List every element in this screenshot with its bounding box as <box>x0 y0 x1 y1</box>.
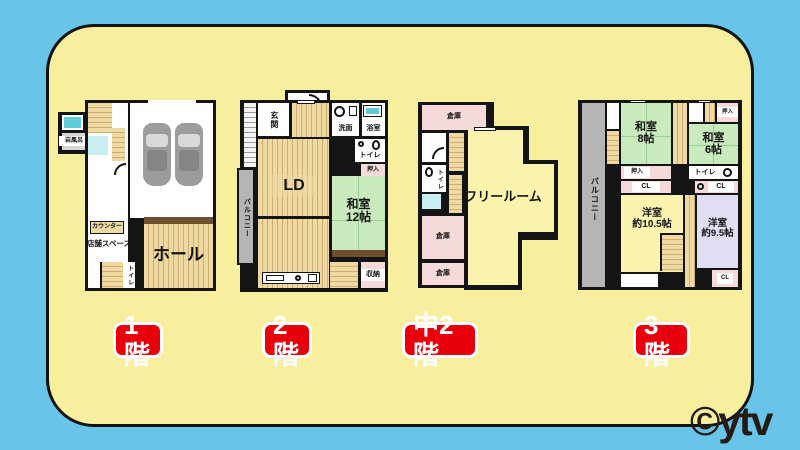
toilet-room: トイレ <box>422 165 446 192</box>
toilet-icon <box>425 167 433 177</box>
stairs <box>449 133 464 171</box>
room-label-cl-right: CL <box>708 182 734 192</box>
room-label-shop-space: 店舗スペース <box>86 239 132 249</box>
room-label-toilet: トイレ <box>124 262 135 288</box>
shop-area: カウンター 店舗スペース トイレ <box>88 103 128 288</box>
car-icon <box>143 123 171 186</box>
cl-bottom: CL <box>712 270 738 287</box>
kitchen-sink-icon <box>266 275 284 281</box>
toilet-icon <box>723 168 732 177</box>
door-arc <box>114 163 126 175</box>
stairs <box>660 233 683 271</box>
room-label-western-room-105: 洋室 約10.5帖 <box>622 203 682 235</box>
closet-top: 押入 <box>717 103 738 122</box>
closet-mid: 押入 <box>621 166 671 179</box>
entrance-room: 玄関 <box>258 103 289 136</box>
landing <box>607 103 619 129</box>
japanese-room-12: 和室 12帖 <box>332 176 385 257</box>
room-label-living-dining: LD <box>272 175 316 197</box>
room-label-closet-top: 押入 <box>717 107 738 117</box>
cl-right: CL <box>695 181 738 193</box>
room-label-japanese-room-6: 和室 6帖 <box>694 128 733 160</box>
washer-icon <box>349 106 357 116</box>
floorplan-1f: 岩風呂 カウンター <box>56 100 216 292</box>
room-label-toilet: トイレ <box>355 150 385 161</box>
bathroom: 浴室 <box>362 103 385 136</box>
window <box>474 127 496 131</box>
ytv-watermark: ©ytv <box>690 398 771 445</box>
hall-edge <box>144 217 213 224</box>
room-label-japanese-room-8: 和室 8帖 <box>626 116 666 150</box>
sink-icon <box>334 106 345 117</box>
balcony: バルコニー <box>237 168 255 265</box>
floor-badge-m2f: 中2階 <box>402 322 478 358</box>
nook-floor <box>705 103 715 122</box>
garage-door <box>148 100 196 103</box>
washroom: 洗面 <box>332 103 359 136</box>
room-label-closet: 押入 <box>361 164 385 176</box>
corridor-floor <box>685 195 695 287</box>
stairs <box>88 103 112 133</box>
room-label-closet-mid: 押入 <box>624 167 650 178</box>
door-arc <box>432 147 444 159</box>
living-dining: LD <box>258 139 329 216</box>
sink-icon <box>697 183 704 190</box>
window <box>630 100 646 103</box>
corridor <box>422 133 446 162</box>
car-windshield <box>178 134 200 147</box>
car-roof <box>179 150 199 171</box>
floor-badge-2f: 2階 <box>262 322 312 358</box>
stairs <box>330 262 358 288</box>
kitchen-counter <box>262 272 320 284</box>
bathtub-icon <box>62 115 83 130</box>
room-label-balcony: バルコニー <box>240 178 253 258</box>
car-roof <box>147 150 167 171</box>
free-room-c <box>468 228 518 285</box>
window <box>698 100 711 103</box>
floor1-outline: カウンター 店舗スペース トイレ ホール <box>85 100 216 291</box>
kitchen-dining <box>258 219 329 288</box>
tv-graphic-floorplans: 岩風呂 カウンター <box>0 0 800 450</box>
hall-room: ホール <box>144 224 213 288</box>
japanese-room-6: 和室 6帖 <box>689 124 738 164</box>
storage-mid: 倉庫 <box>422 216 464 259</box>
cl-left: CL <box>621 181 671 193</box>
sink-icon <box>358 141 364 147</box>
room-label-storage-bottom: 倉庫 <box>422 267 464 281</box>
room-label-washroom: 洗面 <box>332 123 359 134</box>
stove-icon <box>295 275 301 281</box>
car-icon <box>175 123 203 186</box>
free-room-a <box>468 130 523 232</box>
floorplan-3f: バルコニー 和室 8帖 押入 和室 6帖 押入 トイレ CL CL <box>578 100 742 290</box>
toilet-room: トイレ <box>355 139 385 162</box>
room-label-cl-bottom: CL <box>717 273 733 284</box>
car-windshield <box>146 134 168 147</box>
tatami-edge <box>332 250 385 257</box>
bathtub-icon <box>364 106 381 116</box>
corridor-floor <box>673 103 687 164</box>
nook <box>689 103 703 122</box>
garage <box>130 103 213 218</box>
room-label-storage: 収納 <box>361 269 385 281</box>
floorplan-m2f: 倉庫 トイレ 倉庫 倉庫 フリールーム <box>416 96 562 294</box>
upper-hall <box>292 103 329 137</box>
balcony: バルコニー <box>582 103 605 287</box>
floor-badge-1f: 1階 <box>113 322 163 358</box>
toilet-icon <box>372 140 380 150</box>
western-room-95: 洋室 約9.5帖 <box>697 195 738 268</box>
stairs <box>607 131 619 164</box>
stairs <box>100 262 123 288</box>
room-label-toilet: トイレ <box>434 167 444 191</box>
japanese-room-8: 和室 8帖 <box>621 103 671 164</box>
window <box>297 100 315 104</box>
room-label-entrance: 玄関 <box>267 105 280 134</box>
stairs <box>112 128 125 161</box>
closet: 押入 <box>361 164 385 176</box>
storage-bottom: 倉庫 <box>422 263 464 285</box>
storage-room: 収納 <box>361 262 385 288</box>
toilet-room: トイレ <box>689 166 738 179</box>
stove-grid-icon <box>308 274 317 282</box>
room-label-storage-top: 倉庫 <box>422 110 486 124</box>
stairs <box>244 103 256 167</box>
room-label-toilet: トイレ <box>691 167 719 178</box>
room-label-storage-mid: 倉庫 <box>422 230 464 244</box>
bath-room <box>88 136 108 155</box>
room-label-japanese-room-12: 和室 12帖 <box>334 194 383 228</box>
room-label-cl-left: CL <box>632 182 660 192</box>
room-label-counter: カウンター <box>90 221 124 234</box>
room-label-bathroom: 浴室 <box>362 123 385 134</box>
wash-corner <box>422 194 441 209</box>
lower-landing <box>621 274 658 287</box>
room-label-hall: ホール <box>144 242 213 268</box>
room-label-balcony: バルコニー <box>587 163 601 235</box>
room-label-free-room: フリールーム <box>448 188 558 206</box>
room-label-western-room-95: 洋室 約9.5帖 <box>698 213 737 245</box>
floor-badge-3f: 3階 <box>633 322 690 358</box>
floorplan-2f: バルコニー 玄関 洗面 浴室 トイレ 押入 LD <box>237 88 391 292</box>
